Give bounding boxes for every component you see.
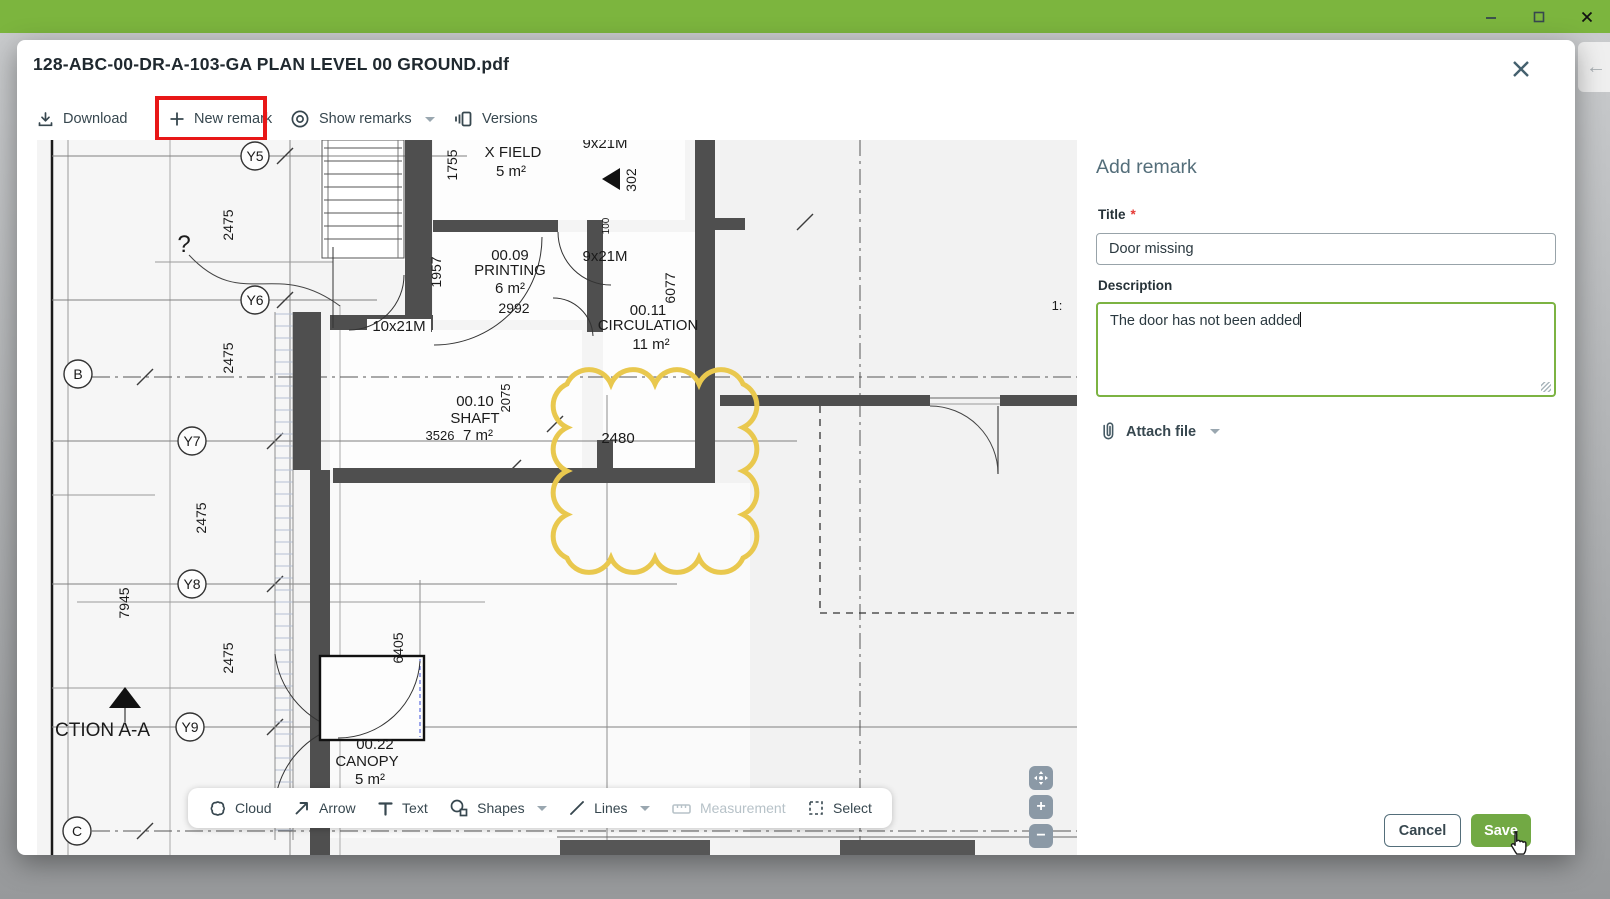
tool-measurement-label: Measurement [700,800,786,816]
svg-text:7 m²: 7 m² [463,427,493,444]
document-title: 128-ABC-00-DR-A-103-GA PLAN LEVEL 00 GRO… [33,54,509,75]
close-icon [1511,59,1531,79]
add-remark-panel: Add remark Title* Description The door h… [1077,140,1575,855]
select-tool-icon [807,799,825,817]
svg-text:Y7: Y7 [183,433,200,449]
back-arrow-icon: ← [1586,56,1606,79]
back-arrow-panel[interactable]: ← [1578,42,1610,92]
show-remarks-button[interactable]: Show remarks [290,97,435,141]
tool-shapes[interactable]: Shapes [449,798,546,818]
document-viewer-modal: 128-ABC-00-DR-A-103-GA PLAN LEVEL 00 GRO… [17,40,1575,855]
show-remarks-label: Show remarks [319,111,412,127]
zoom-out-button[interactable]: − [1029,824,1053,848]
versions-label: Versions [482,111,538,127]
chevron-down-icon [640,806,650,811]
svg-text:Y8: Y8 [183,576,200,592]
svg-text:100: 100 [601,217,612,234]
plus-icon: + [1036,799,1045,815]
tool-arrow[interactable]: Arrow [293,799,356,817]
text-cursor [1300,312,1301,327]
chevron-down-icon [425,117,435,122]
svg-text:5 m²: 5 m² [496,163,526,180]
svg-text:Y5: Y5 [246,148,263,164]
svg-text:00.22: 00.22 [356,736,394,753]
svg-text:?: ? [177,231,190,258]
svg-text:CTION A-A: CTION A-A [55,720,150,741]
svg-text:PRINTING: PRINTING [474,262,546,279]
title-input[interactable] [1096,233,1556,265]
eye-icon [290,109,310,129]
svg-text:Y9: Y9 [181,719,198,735]
description-textarea[interactable]: The door has not been added [1096,302,1556,397]
chevron-down-icon [537,806,547,811]
tool-cloud[interactable]: Cloud [208,799,272,818]
tool-text-label: Text [402,800,428,816]
versions-icon [453,109,473,129]
required-asterisk: * [1131,207,1136,222]
svg-text:6405: 6405 [390,632,406,663]
svg-text:9x21M: 9x21M [582,248,627,265]
svg-text:7945: 7945 [116,587,132,618]
versions-button[interactable]: Versions [453,97,538,141]
svg-text:1755: 1755 [444,149,460,180]
download-icon [37,111,54,128]
tool-lines-label: Lines [594,800,627,816]
svg-text:2480: 2480 [601,430,634,447]
svg-text:2075: 2075 [498,384,513,413]
tool-arrow-label: Arrow [319,800,356,816]
zoom-in-button[interactable]: + [1029,795,1053,819]
download-button[interactable]: Download [37,97,128,141]
textarea-resize-grip[interactable] [1541,382,1551,392]
svg-text:5 m²: 5 m² [355,771,385,788]
description-label: Description [1098,278,1172,293]
os-titlebar [0,0,1610,33]
attach-file-button[interactable]: Attach file [1101,421,1220,442]
svg-text:10x21M: 10x21M [372,318,425,335]
modal-close-button[interactable] [1505,53,1537,85]
zoom-controls: + − [1029,766,1053,848]
tool-select[interactable]: Select [807,799,872,817]
svg-text:11 m²: 11 m² [632,336,669,353]
minus-icon: − [1036,828,1045,844]
svg-text:6077: 6077 [662,272,678,303]
pan-button[interactable] [1029,766,1053,790]
svg-text:1957: 1957 [428,256,444,287]
svg-text:Y6: Y6 [246,292,263,308]
cancel-button[interactable]: Cancel [1384,814,1461,847]
cloud-tool-icon [208,799,227,818]
window-maximize-button[interactable] [1528,6,1550,28]
new-remark-highlight-box [155,96,267,141]
chevron-down-icon [1210,429,1220,434]
svg-text:00.10: 00.10 [456,393,494,410]
svg-text:2475: 2475 [220,342,236,373]
window-minimize-button[interactable] [1480,6,1502,28]
arrow-tool-icon [293,799,311,817]
svg-text:X FIELD: X FIELD [485,144,542,161]
download-label: Download [63,111,128,127]
tool-shapes-label: Shapes [477,800,524,816]
svg-text:SHAFT: SHAFT [450,410,499,427]
svg-text:6 m²: 6 m² [495,280,525,297]
shapes-tool-icon [449,798,469,818]
save-button[interactable]: Save [1471,814,1531,847]
attach-file-label: Attach file [1126,424,1196,440]
svg-text:2992: 2992 [498,300,529,316]
tool-text[interactable]: Text [377,800,428,817]
text-tool-icon [377,800,394,817]
tool-measurement: Measurement [671,798,786,819]
screen: ← 128-ABC-00-DR-A-103-GA PLAN LEVEL 00 G… [0,0,1610,899]
annotation-toolbar: Cloud Arrow Text Shapes [188,788,892,828]
svg-text:9x21M: 9x21M [582,140,627,152]
svg-text:2475: 2475 [220,642,236,673]
window-close-button[interactable] [1576,6,1598,28]
tool-cloud-label: Cloud [235,800,272,816]
tool-select-label: Select [833,800,872,816]
svg-text:302: 302 [623,168,639,192]
description-value: The door has not been added [1110,313,1300,329]
panel-heading: Add remark [1096,156,1197,179]
measurement-tool-icon [671,798,692,819]
tool-lines[interactable]: Lines [568,799,649,817]
svg-text:B: B [73,366,82,382]
svg-text:1:: 1: [1052,298,1063,313]
plan-background [37,140,1077,855]
svg-text:3526: 3526 [426,428,455,443]
lines-tool-icon [568,799,586,817]
svg-text:CIRCULATION: CIRCULATION [598,317,699,334]
svg-text:2475: 2475 [220,209,236,240]
pan-icon [1033,770,1049,786]
paperclip-icon [1101,421,1116,442]
svg-text:CANOPY: CANOPY [335,753,398,770]
svg-text:2475: 2475 [193,502,209,533]
plan-canvas[interactable]: Y5Y6BY7Y8Y9C 9x21MX FIELD5 m²30217551000… [37,140,1077,855]
title-label: Title* [1098,207,1136,222]
svg-text:C: C [72,823,82,839]
